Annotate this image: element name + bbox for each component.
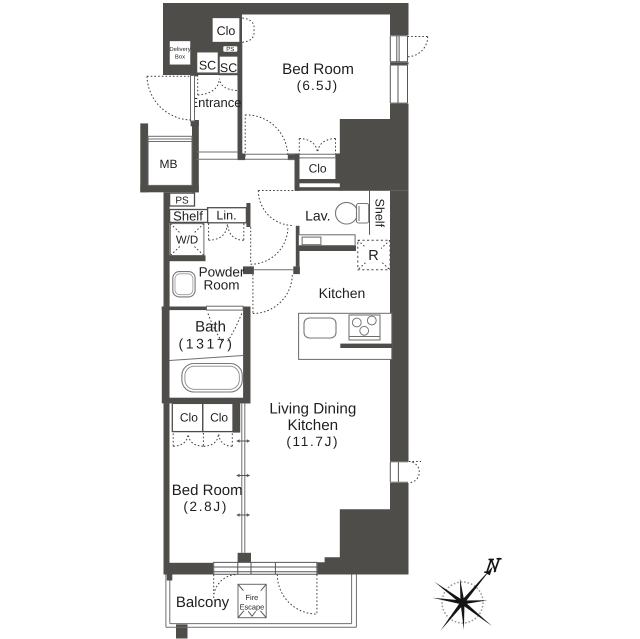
svg-text:Shelf: Shelf [173, 209, 203, 224]
svg-text:(6.5J): (6.5J) [297, 78, 339, 93]
svg-text:Entrance: Entrance [189, 95, 241, 110]
svg-text:Escape: Escape [240, 602, 265, 611]
svg-text:Bed Room: Bed Room [172, 482, 243, 499]
svg-text:Clo: Clo [309, 162, 327, 176]
svg-text:MB: MB [160, 157, 178, 171]
svg-text:Clo: Clo [217, 24, 236, 38]
svg-text:Shelf: Shelf [373, 199, 387, 228]
svg-text:Delivery: Delivery [169, 46, 190, 53]
svg-text:Living Dining: Living Dining [269, 401, 356, 418]
svg-text:Balcony: Balcony [176, 594, 230, 611]
svg-text:W/D: W/D [176, 235, 198, 247]
svg-text:R: R [368, 248, 378, 264]
svg-text:Fire: Fire [246, 593, 259, 602]
svg-text:Kitchen: Kitchen [287, 417, 338, 434]
svg-text:Lav.: Lav. [305, 208, 330, 224]
svg-text:Kitchen: Kitchen [319, 285, 366, 301]
svg-text:Clo: Clo [210, 411, 228, 425]
svg-text:Lin.: Lin. [216, 209, 236, 223]
svg-text:Box: Box [175, 54, 185, 61]
svg-text:(11.7J): (11.7J) [286, 434, 339, 449]
svg-text:Clo: Clo [180, 411, 198, 425]
svg-text:PS: PS [226, 46, 234, 53]
svg-text:Room: Room [203, 278, 239, 293]
svg-text:(2.8J): (2.8J) [183, 499, 228, 514]
svg-text:Bed Room: Bed Room [282, 61, 354, 78]
svg-text:(1317): (1317) [178, 336, 234, 352]
svg-text:PS: PS [175, 196, 189, 207]
svg-text:SC: SC [199, 59, 216, 73]
